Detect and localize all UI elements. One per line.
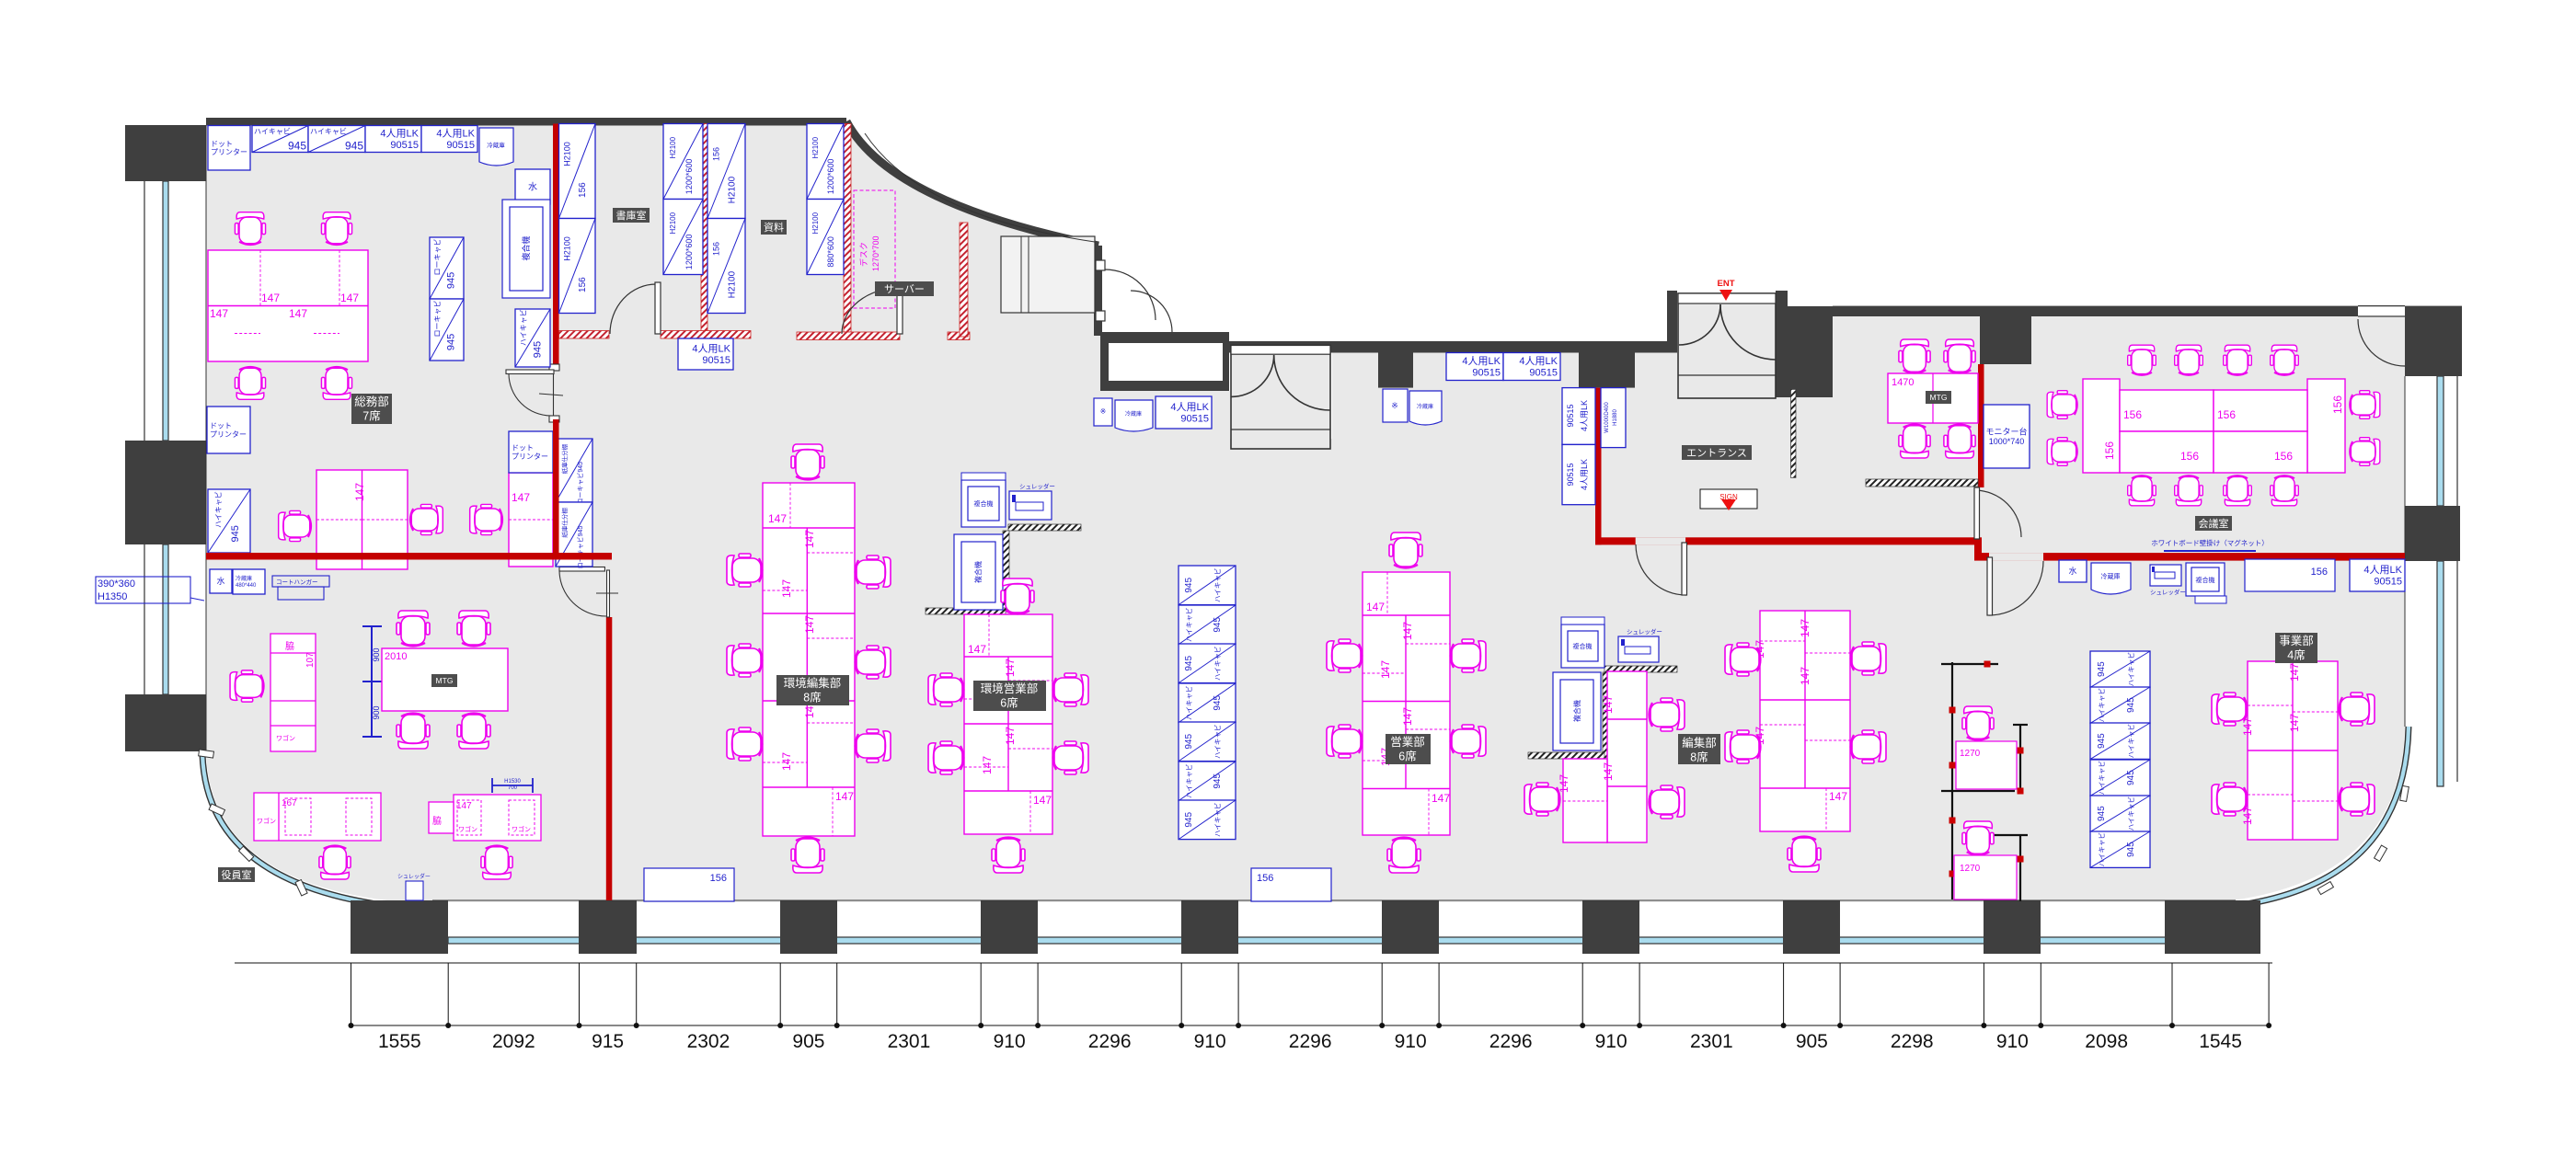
svg-text:ハイキャビ: ハイキャビ	[254, 128, 291, 136]
svg-text:1200*600: 1200*600	[826, 159, 835, 195]
svg-text:編集部: 編集部	[1682, 736, 1717, 750]
svg-text:147: 147	[1432, 792, 1450, 805]
svg-text:ハイキャビ: ハイキャビ	[310, 128, 347, 136]
svg-text:紙庫仕分棚: 紙庫仕分棚	[560, 508, 569, 538]
svg-text:ハイキャビ: ハイキャビ	[2127, 652, 2135, 686]
svg-text:90515: 90515	[1180, 414, 1209, 425]
svg-text:MTG: MTG	[436, 676, 454, 685]
svg-text:ハイキャビ: ハイキャビ	[2098, 832, 2106, 866]
svg-text:90515: 90515	[1472, 368, 1501, 379]
svg-text:冷蔵庫: 冷蔵庫	[2101, 572, 2121, 580]
svg-text:ENT: ENT	[1718, 279, 1735, 289]
svg-text:147: 147	[1829, 790, 1847, 803]
svg-text:945: 945	[230, 525, 241, 542]
svg-text:ハイキャビ: ハイキャビ	[1185, 686, 1193, 720]
svg-text:910: 910	[1194, 1031, 1226, 1052]
svg-text:会議室: 会議室	[2199, 517, 2229, 530]
svg-text:ワゴン: ワゴン	[276, 734, 295, 742]
svg-text:2092: 2092	[492, 1031, 535, 1052]
svg-text:※: ※	[1100, 407, 1107, 416]
svg-text:冷蔵庫: 冷蔵庫	[487, 141, 505, 149]
svg-text:H2100: H2100	[811, 212, 820, 234]
svg-text:複合機: 複合機	[973, 561, 983, 583]
svg-text:147: 147	[768, 512, 787, 525]
svg-text:90515: 90515	[702, 355, 730, 366]
svg-text:ワゴン: ワゴン	[512, 825, 531, 833]
svg-text:147: 147	[780, 579, 793, 598]
svg-text:冷蔵庫: 冷蔵庫	[236, 575, 252, 582]
svg-text:冷蔵庫: 冷蔵庫	[1417, 403, 1433, 410]
svg-text:147: 147	[835, 790, 854, 803]
svg-text:総務部: 総務部	[354, 395, 389, 408]
svg-text:945: 945	[2126, 770, 2136, 785]
svg-text:945: 945	[446, 272, 457, 289]
svg-text:2098: 2098	[2085, 1031, 2128, 1052]
svg-text:945: 945	[2126, 842, 2136, 857]
svg-text:ハイキャビ: ハイキャビ	[1213, 725, 1222, 759]
svg-text:H2100: H2100	[562, 236, 571, 261]
svg-text:915: 915	[592, 1031, 624, 1052]
svg-text:156: 156	[2274, 450, 2293, 463]
svg-text:H1530: H1530	[504, 779, 521, 785]
svg-text:147: 147	[1558, 774, 1570, 793]
svg-text:2302: 2302	[687, 1031, 730, 1052]
svg-text:147: 147	[340, 292, 359, 304]
svg-text:H2100: H2100	[728, 270, 738, 298]
svg-text:147: 147	[512, 491, 530, 504]
svg-text:905: 905	[792, 1031, 824, 1052]
svg-text:H2100: H2100	[562, 142, 571, 166]
svg-text:945: 945	[1213, 773, 1223, 789]
svg-text:ローキャビ945: ローキャビ945	[576, 526, 584, 569]
svg-text:シュレッダー: シュレッダー	[1627, 627, 1662, 636]
svg-text:90515: 90515	[390, 140, 419, 151]
svg-text:W1000D400: W1000D400	[1604, 402, 1610, 433]
svg-text:H2100: H2100	[728, 176, 738, 203]
svg-text:945: 945	[345, 140, 363, 153]
svg-text:事業部: 事業部	[2279, 634, 2314, 647]
svg-text:156: 156	[2331, 395, 2344, 414]
svg-text:2298: 2298	[1891, 1031, 1934, 1052]
svg-text:905: 905	[1796, 1031, 1828, 1052]
svg-text:147: 147	[2241, 717, 2254, 736]
svg-text:900: 900	[372, 705, 381, 719]
svg-text:156: 156	[2180, 450, 2199, 463]
svg-text:プリンター: プリンター	[211, 148, 247, 156]
svg-text:1200*600: 1200*600	[684, 235, 694, 270]
svg-text:複合機: 複合機	[2196, 576, 2215, 584]
svg-text:6席: 6席	[1000, 696, 1018, 710]
svg-text:ハイキャビ: ハイキャビ	[214, 491, 223, 528]
svg-text:90515: 90515	[1566, 404, 1575, 427]
svg-text:156: 156	[2311, 567, 2328, 578]
svg-text:90515: 90515	[1566, 463, 1575, 486]
svg-text:4席: 4席	[2287, 648, 2305, 662]
svg-text:945: 945	[2097, 661, 2107, 677]
svg-text:4人用LK: 4人用LK	[380, 128, 419, 140]
svg-text:ハイキャビ: ハイキャビ	[2127, 796, 2135, 831]
svg-text:147: 147	[1602, 762, 1615, 781]
svg-text:脇: 脇	[432, 816, 442, 827]
svg-text:147: 147	[261, 292, 280, 304]
svg-text:営業部: 営業部	[1390, 735, 1425, 749]
svg-text:サーバー: サーバー	[884, 283, 925, 295]
svg-text:147: 147	[1033, 794, 1052, 807]
svg-text:ワゴン: ワゴン	[257, 817, 276, 825]
svg-text:156: 156	[710, 873, 727, 884]
svg-text:1000*740: 1000*740	[1989, 437, 2025, 446]
svg-text:ハイキャビ: ハイキャビ	[1213, 568, 1222, 602]
svg-text:900: 900	[372, 647, 381, 661]
svg-text:ドット: ドット	[512, 444, 534, 452]
svg-text:147: 147	[1366, 601, 1385, 613]
svg-text:156: 156	[711, 147, 720, 161]
svg-text:デスク: デスク	[858, 242, 868, 267]
svg-text:945: 945	[2097, 733, 2107, 749]
svg-text:147: 147	[1799, 619, 1811, 637]
svg-text:4人用LK: 4人用LK	[692, 343, 730, 355]
svg-text:945: 945	[2097, 806, 2107, 821]
svg-text:H2100: H2100	[811, 136, 820, 158]
svg-text:※: ※	[1391, 401, 1398, 410]
svg-text:4人用LK: 4人用LK	[1519, 355, 1558, 367]
svg-text:2301: 2301	[888, 1031, 931, 1052]
svg-text:2301: 2301	[1690, 1031, 1733, 1052]
svg-text:水: 水	[528, 182, 537, 193]
svg-text:8席: 8席	[803, 691, 821, 705]
svg-text:156: 156	[711, 242, 720, 256]
svg-text:107: 107	[305, 652, 316, 668]
svg-text:945: 945	[288, 140, 306, 153]
svg-text:910: 910	[1395, 1031, 1427, 1052]
svg-text:ハイキャビ: ハイキャビ	[2098, 761, 2106, 795]
svg-text:ローキャビ: ローキャビ	[433, 238, 442, 275]
svg-text:6席: 6席	[1398, 750, 1416, 763]
svg-text:945: 945	[1184, 578, 1194, 593]
svg-text:水: 水	[2068, 566, 2076, 576]
svg-text:147: 147	[353, 483, 366, 501]
svg-text:1270: 1270	[1960, 864, 1981, 874]
svg-text:147: 147	[981, 756, 994, 774]
svg-text:ローキャビ945: ローキャビ945	[576, 462, 584, 505]
svg-text:ローキャビ: ローキャビ	[433, 300, 442, 337]
svg-text:390*360: 390*360	[98, 578, 135, 590]
svg-text:156: 156	[578, 277, 588, 292]
svg-text:水: 水	[216, 576, 224, 586]
svg-text:147: 147	[2288, 714, 2301, 732]
svg-text:紙庫仕分棚: 紙庫仕分棚	[560, 443, 569, 474]
svg-text:1270: 1270	[1960, 749, 1981, 759]
svg-text:945: 945	[1213, 617, 1223, 633]
svg-text:945: 945	[532, 341, 543, 358]
svg-text:4人用LK: 4人用LK	[1462, 355, 1501, 367]
svg-text:脇: 脇	[285, 641, 294, 652]
svg-text:910: 910	[994, 1031, 1026, 1052]
svg-text:8席: 8席	[1690, 750, 1708, 764]
svg-text:4人用LK: 4人用LK	[436, 128, 475, 140]
svg-text:147: 147	[2288, 663, 2301, 682]
svg-text:冷蔵庫: 冷蔵庫	[1125, 410, 1142, 418]
svg-text:167: 167	[282, 798, 297, 808]
svg-text:147: 147	[1379, 660, 1392, 679]
svg-text:4人用LK: 4人用LK	[1170, 401, 1209, 413]
svg-text:945: 945	[1184, 734, 1194, 750]
svg-text:90515: 90515	[446, 140, 475, 151]
svg-text:プリンター: プリンター	[512, 452, 548, 461]
svg-text:147: 147	[803, 615, 816, 634]
svg-text:156: 156	[1257, 873, 1273, 884]
svg-text:ハイキャビ: ハイキャビ	[2127, 724, 2135, 758]
svg-text:910: 910	[1595, 1031, 1627, 1052]
svg-text:1470: 1470	[1892, 377, 1914, 388]
svg-text:90515: 90515	[2374, 577, 2402, 588]
svg-text:2296: 2296	[1088, 1031, 1132, 1052]
svg-text:環境営業部: 環境営業部	[981, 682, 1039, 695]
svg-text:147: 147	[1004, 727, 1017, 745]
svg-text:147: 147	[210, 307, 228, 320]
svg-text:複合機: 複合機	[1572, 700, 1581, 722]
svg-text:4人用LK: 4人用LK	[1580, 400, 1589, 431]
svg-text:1545: 1545	[2199, 1031, 2242, 1052]
svg-text:945: 945	[1213, 695, 1223, 711]
svg-text:ドット: ドット	[210, 422, 232, 430]
svg-text:480*440: 480*440	[236, 583, 257, 589]
svg-text:複合機: 複合機	[1573, 642, 1593, 650]
svg-text:945: 945	[1184, 812, 1194, 828]
svg-text:147: 147	[1401, 707, 1414, 726]
svg-text:H2100: H2100	[669, 136, 677, 158]
svg-text:1200*600: 1200*600	[684, 159, 694, 195]
svg-text:モニター台: モニター台	[1985, 426, 2027, 436]
svg-text:156: 156	[2217, 408, 2236, 421]
svg-text:2296: 2296	[1289, 1031, 1332, 1052]
svg-text:シュレッダー: シュレッダー	[1019, 482, 1055, 490]
svg-text:156: 156	[578, 182, 588, 198]
svg-text:ハイキャビ: ハイキャビ	[519, 309, 527, 346]
svg-text:複合機: 複合機	[521, 235, 531, 260]
svg-text:147: 147	[803, 530, 816, 548]
svg-text:ハイキャビ: ハイキャビ	[2098, 688, 2106, 722]
svg-text:ホワイトボード壁掛け（マグネット）: ホワイトボード壁掛け（マグネット）	[2151, 538, 2269, 547]
svg-text:プリンター: プリンター	[210, 430, 247, 439]
svg-text:2010: 2010	[385, 651, 407, 662]
svg-text:147: 147	[1799, 667, 1811, 685]
svg-text:147: 147	[456, 801, 472, 811]
svg-text:ハイキャビ: ハイキャビ	[1185, 764, 1193, 798]
svg-text:資料: 資料	[764, 221, 784, 234]
svg-text:1270*700: 1270*700	[871, 235, 880, 271]
svg-text:945: 945	[446, 334, 457, 350]
svg-text:4人用LK: 4人用LK	[2363, 564, 2402, 576]
svg-text:147: 147	[289, 307, 307, 320]
svg-text:シュレッダー: シュレッダー	[2150, 588, 2186, 596]
svg-text:シュレッダー: シュレッダー	[397, 873, 431, 880]
svg-text:880*600: 880*600	[826, 236, 835, 268]
svg-text:ハイキャビ: ハイキャビ	[1213, 647, 1222, 681]
svg-text:ドット: ドット	[211, 140, 233, 148]
svg-text:945: 945	[2126, 697, 2136, 713]
svg-text:2296: 2296	[1489, 1031, 1533, 1052]
svg-text:環境編集部: 環境編集部	[784, 676, 842, 690]
svg-text:1555: 1555	[378, 1031, 421, 1052]
svg-text:7席: 7席	[362, 409, 380, 423]
svg-text:147: 147	[968, 643, 986, 656]
svg-text:H1880: H1880	[1613, 409, 1618, 426]
svg-text:147: 147	[1602, 695, 1615, 714]
svg-text:700: 700	[508, 785, 518, 791]
svg-text:945: 945	[1184, 656, 1194, 671]
svg-text:147: 147	[1004, 659, 1017, 677]
svg-text:エントランス: エントランス	[1686, 448, 1747, 459]
svg-text:MTG: MTG	[1930, 393, 1948, 402]
svg-text:H2100: H2100	[669, 212, 677, 234]
svg-text:4人用LK: 4人用LK	[1580, 459, 1589, 490]
svg-text:複合機: 複合機	[974, 499, 994, 508]
svg-text:910: 910	[1996, 1031, 2029, 1052]
svg-text:ワゴン: ワゴン	[458, 825, 477, 833]
svg-text:90515: 90515	[1529, 368, 1558, 379]
svg-text:147: 147	[780, 752, 793, 771]
svg-text:H1350: H1350	[98, 591, 127, 602]
svg-text:コートハンガー: コートハンガー	[276, 578, 318, 586]
svg-text:156: 156	[2123, 408, 2142, 421]
svg-text:ハイキャビ: ハイキャビ	[1213, 803, 1222, 837]
svg-text:書庫室: 書庫室	[616, 209, 647, 222]
svg-text:ハイキャビ: ハイキャビ	[1185, 608, 1193, 642]
svg-text:147: 147	[1401, 622, 1414, 640]
svg-text:156: 156	[2103, 441, 2116, 460]
svg-text:役員室: 役員室	[222, 868, 252, 881]
